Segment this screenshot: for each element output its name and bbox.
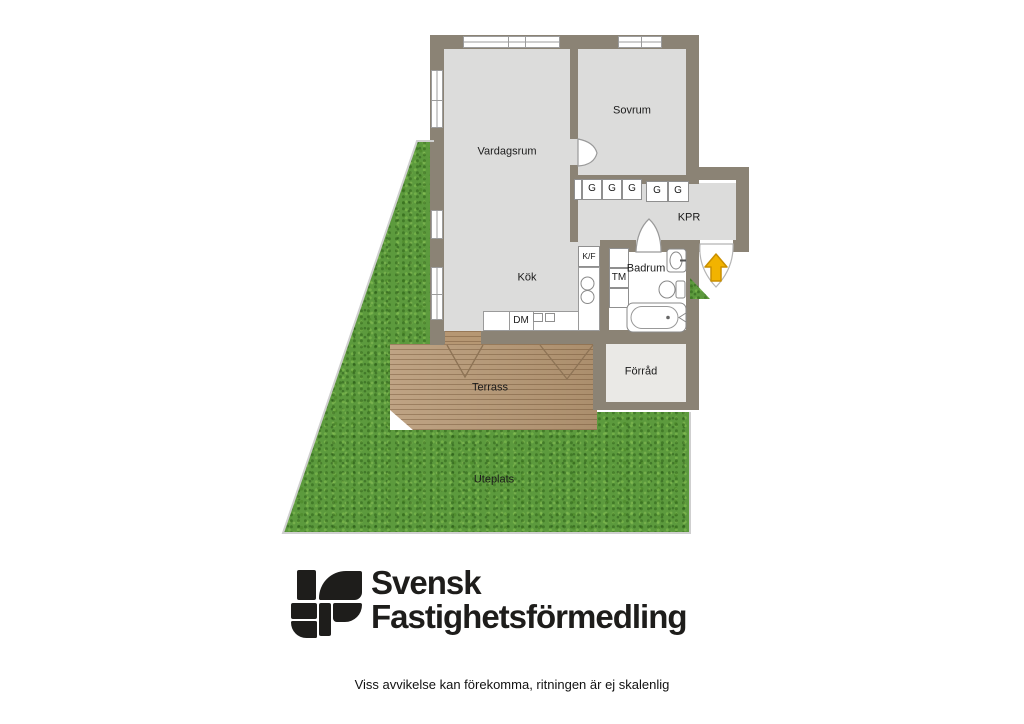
wardrobe-label: G <box>628 184 636 194</box>
room-label-badrum: Badrum <box>627 264 666 275</box>
wall <box>661 240 686 252</box>
wardrobe-label: G <box>588 184 596 194</box>
room-label-kpr: KPR <box>678 213 701 224</box>
dishwasher-label: DM <box>513 316 529 326</box>
floorplan-canvas: Vardagsrum Sovrum Kök KPR Badrum Förråd … <box>0 0 1024 724</box>
sink-basin <box>545 313 555 322</box>
wall <box>686 240 699 410</box>
wardrobe-label: G <box>653 186 661 196</box>
wall <box>733 240 749 252</box>
window <box>463 36 560 48</box>
disclaimer-text: Viss avvikelse kan förekomma, ritningen … <box>0 677 1024 692</box>
sink-basin <box>533 313 543 322</box>
wall <box>430 331 445 344</box>
window <box>431 210 443 239</box>
wardrobe-cabinet <box>574 179 582 200</box>
wall <box>593 402 699 410</box>
room-label-uteplats: Uteplats <box>474 475 514 486</box>
room-label-forrad: Förråd <box>625 367 657 378</box>
room-label-terrass: Terrass <box>472 383 508 394</box>
fridge-freezer-label: K/F <box>582 252 595 261</box>
room-label-sovrum: Sovrum <box>613 106 651 117</box>
window <box>431 70 443 128</box>
wall <box>600 330 686 344</box>
svensk-fastighetsformedling-logo-icon <box>289 568 363 638</box>
brand-name: Svensk Fastighetsförmedling <box>371 566 687 634</box>
wall <box>570 49 578 139</box>
wall <box>593 344 606 410</box>
wall <box>686 35 699 180</box>
room-label-vardagsrum: Vardagsrum <box>477 147 536 158</box>
wall <box>600 240 609 332</box>
window <box>431 267 443 320</box>
wardrobe-label: G <box>674 186 682 196</box>
window <box>618 36 662 48</box>
bathroom-cabinet <box>609 288 629 308</box>
wardrobe-label: G <box>608 184 616 194</box>
kitchen-counter <box>483 311 579 331</box>
wall <box>481 331 602 344</box>
room-label-kok: Kök <box>518 273 537 284</box>
entrance-arrow-icon <box>705 254 727 281</box>
terrace-door-opening <box>445 331 481 344</box>
kitchen-counter <box>578 267 600 331</box>
brand-name-line2: Fastighetsförmedling <box>371 600 687 634</box>
brand-name-line1: Svensk <box>371 566 687 600</box>
washing-machine-label: TM <box>612 273 626 283</box>
entrance-door-arc <box>700 244 733 287</box>
